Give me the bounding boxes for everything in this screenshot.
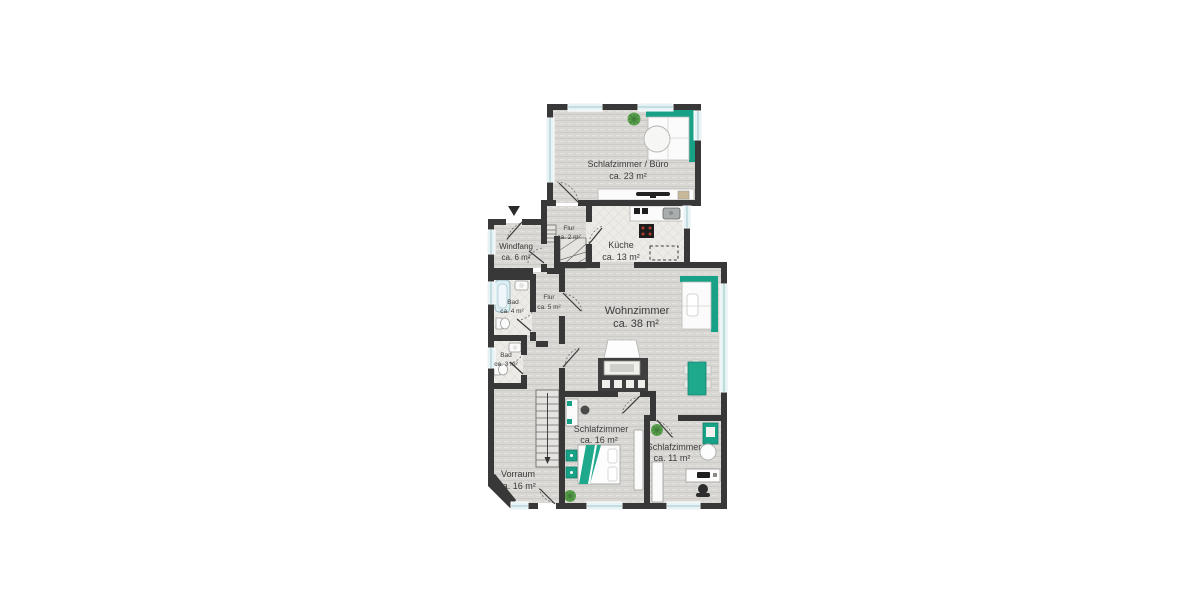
room-label: Windfang bbox=[499, 242, 533, 251]
window bbox=[511, 502, 528, 510]
room-label: Flur bbox=[563, 225, 575, 232]
plant-icon bbox=[564, 490, 576, 502]
window bbox=[587, 502, 622, 510]
stool-icon bbox=[581, 406, 590, 415]
room-label: Bad bbox=[507, 299, 519, 306]
room-area: ca. 16 m² bbox=[580, 435, 618, 445]
window bbox=[568, 103, 602, 111]
window bbox=[487, 282, 495, 304]
room-label: Schlafzimmer bbox=[647, 442, 702, 452]
wc-icon bbox=[496, 318, 510, 329]
room-label: Bad bbox=[500, 352, 512, 359]
washbasin-icon bbox=[509, 343, 521, 352]
window bbox=[683, 206, 691, 228]
room-area: ca. 3 m² bbox=[494, 361, 518, 368]
plant-icon bbox=[628, 113, 641, 126]
window bbox=[720, 284, 728, 392]
room-area: ca. 13 m² bbox=[602, 252, 640, 262]
room-label: Flur bbox=[543, 294, 555, 301]
window bbox=[667, 502, 700, 510]
room-label: Küche bbox=[608, 240, 634, 250]
room-area: ca. 5 m² bbox=[537, 304, 561, 311]
round-table-icon bbox=[644, 126, 670, 152]
staircase-down-icon bbox=[536, 390, 559, 467]
floor-plan-svg: Schlafzimmer / Büro ca. 23 m² Flur ca. 2… bbox=[0, 0, 1200, 600]
room-area: ca. 16 m² bbox=[498, 481, 536, 491]
room-label: Schlafzimmer bbox=[574, 424, 629, 434]
room-area: ca. 2 m² bbox=[557, 234, 581, 241]
room-area: ca. 11 m² bbox=[654, 453, 691, 463]
round-chair-icon bbox=[700, 444, 716, 460]
window bbox=[546, 118, 554, 182]
plant-icon bbox=[651, 424, 663, 436]
room-area: ca. 38 m² bbox=[613, 318, 659, 330]
desk-icon bbox=[566, 399, 578, 426]
wardrobe-icon bbox=[652, 462, 663, 502]
wardrobe-icon bbox=[634, 430, 643, 490]
room-area: ca. 4 m² bbox=[500, 308, 524, 315]
wall-shelf-icon bbox=[703, 423, 718, 444]
window bbox=[487, 230, 495, 254]
room-area: ca. 6 m² bbox=[502, 253, 531, 262]
floor-plan-canvas: Schlafzimmer / Büro ca. 23 m² Flur ca. 2… bbox=[0, 0, 1200, 600]
living-corner-sofa-icon bbox=[680, 276, 718, 332]
stove-icon bbox=[639, 224, 654, 238]
sink-icon bbox=[663, 208, 680, 219]
armchair-icon bbox=[604, 340, 640, 358]
washbasin-icon bbox=[515, 281, 528, 290]
room-label: Wohnzimmer bbox=[605, 305, 670, 317]
sideboard-tv-icon bbox=[598, 189, 694, 200]
window bbox=[638, 103, 673, 111]
window bbox=[694, 111, 702, 140]
room-area: ca. 23 m² bbox=[609, 171, 647, 181]
room-label: Vorraum bbox=[501, 469, 535, 479]
room-label: Schlafzimmer / Büro bbox=[587, 159, 668, 169]
